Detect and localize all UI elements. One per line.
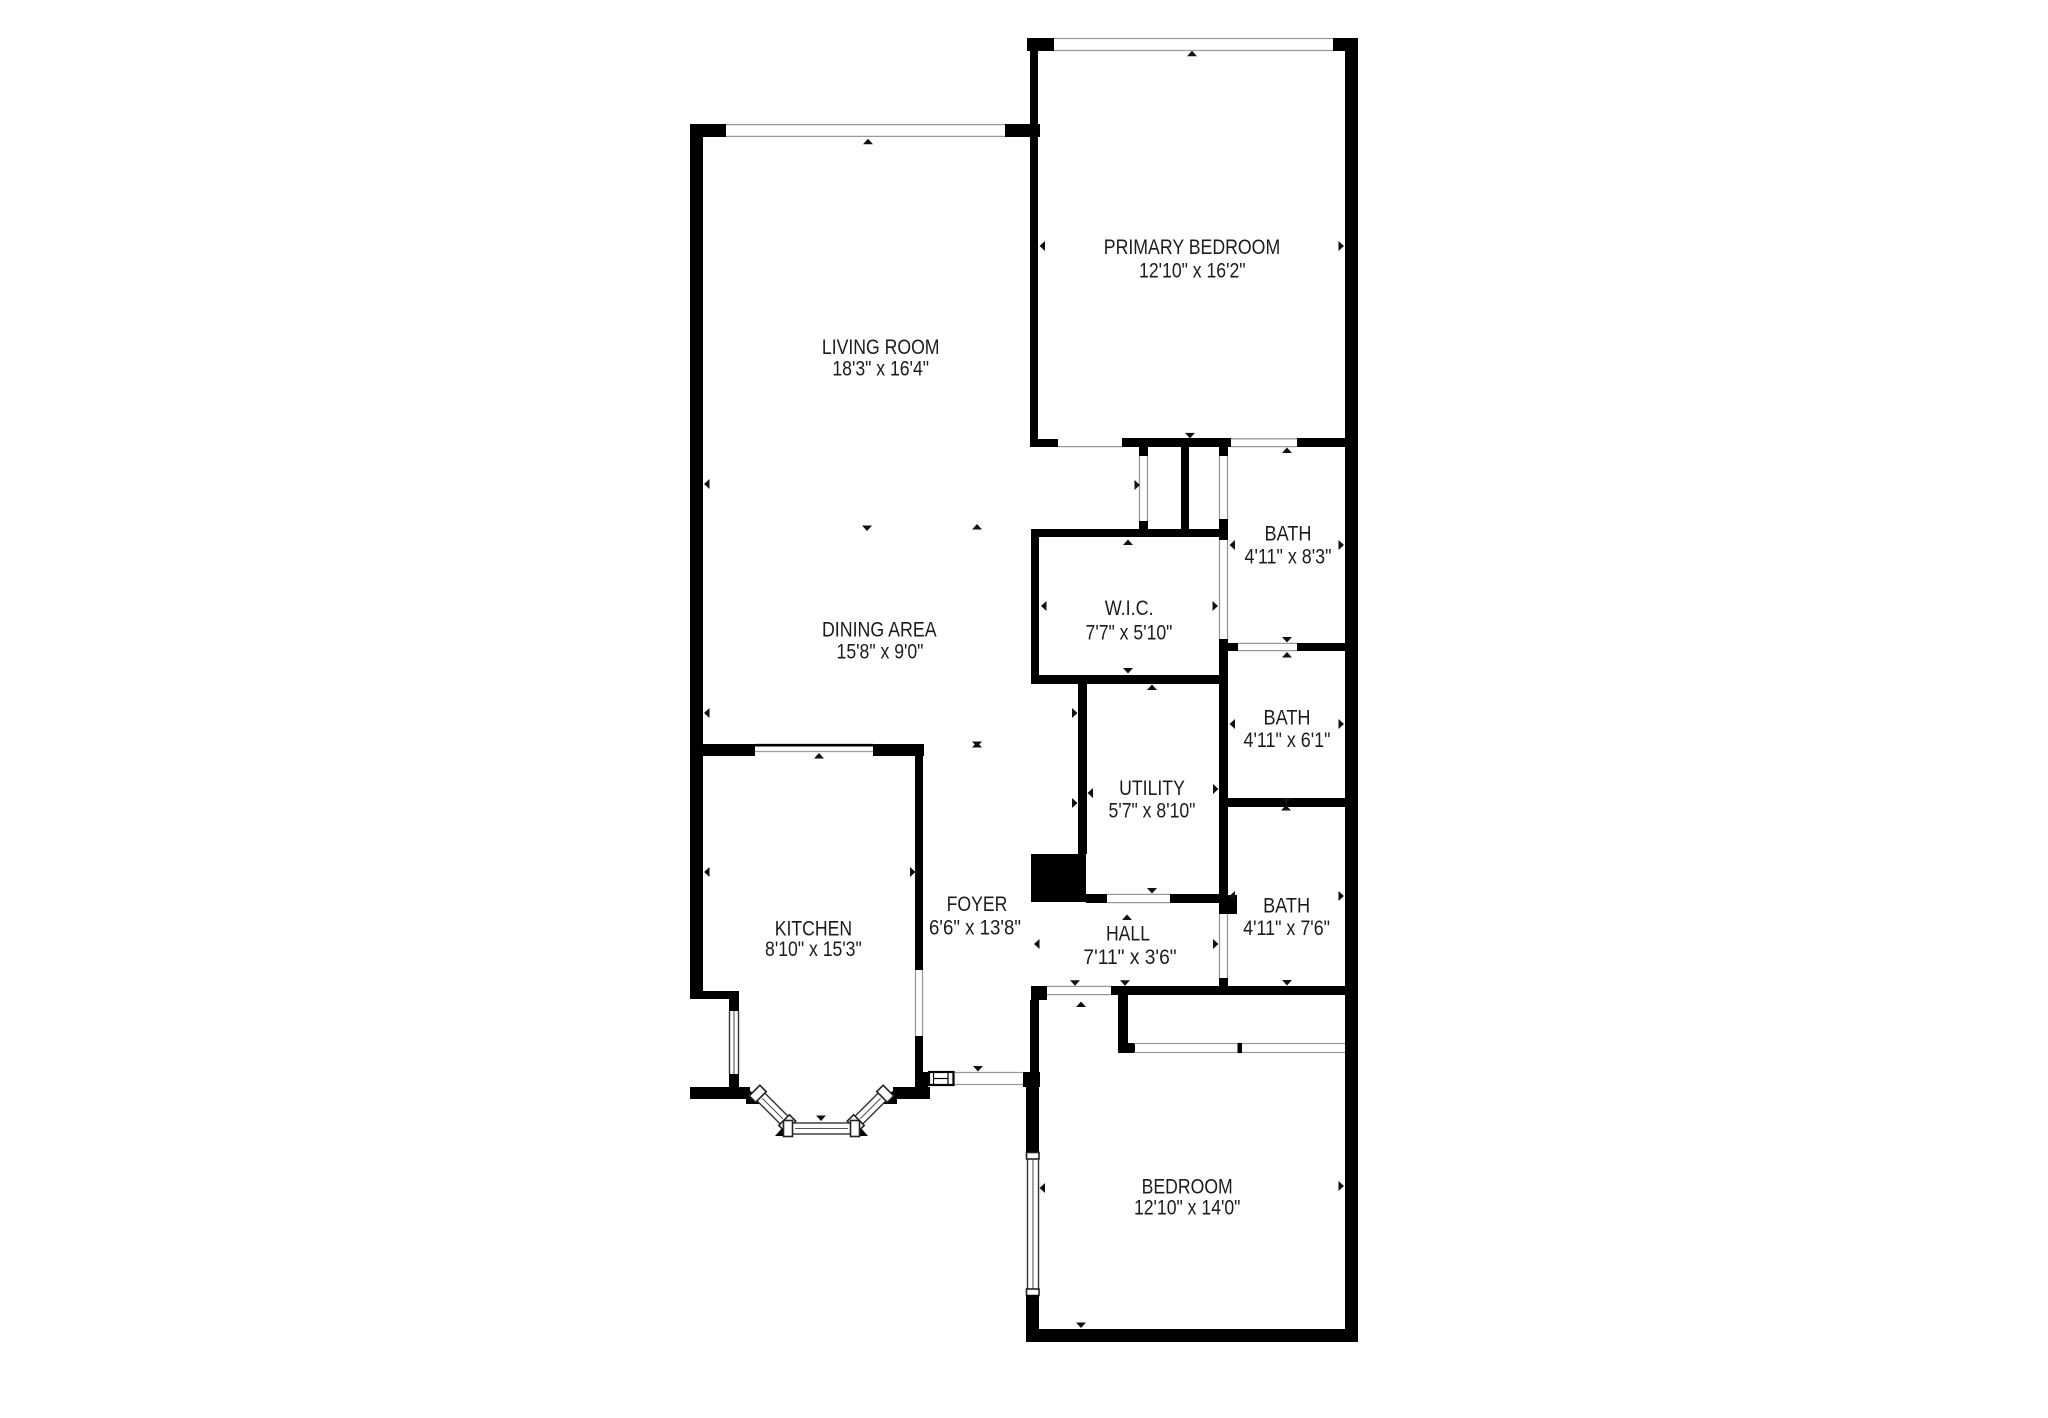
svg-text:5'7" x 8'10": 5'7" x 8'10" xyxy=(1109,800,1196,823)
svg-text:BATH: BATH xyxy=(1263,894,1310,917)
svg-text:12'10" x 16'2": 12'10" x 16'2" xyxy=(1139,260,1246,283)
svg-text:18'3" x 16'4": 18'3" x 16'4" xyxy=(832,358,929,381)
svg-text:BEDROOM: BEDROOM xyxy=(1142,1176,1233,1199)
svg-text:8'10" x 15'3": 8'10" x 15'3" xyxy=(765,938,862,961)
svg-text:15'8" x 9'0": 15'8" x 9'0" xyxy=(837,641,924,664)
svg-text:HALL: HALL xyxy=(1106,923,1150,946)
svg-text:7'7" x 5'10": 7'7" x 5'10" xyxy=(1086,622,1173,645)
svg-text:7'11" x 3'6": 7'11" x 3'6" xyxy=(1083,946,1176,969)
svg-text:FOYER: FOYER xyxy=(947,893,1008,916)
svg-text:4'11" x 7'6": 4'11" x 7'6" xyxy=(1243,917,1330,940)
svg-text:UTILITY: UTILITY xyxy=(1119,777,1185,800)
svg-text:4'11" x 6'1": 4'11" x 6'1" xyxy=(1244,729,1331,752)
svg-text:LIVING ROOM: LIVING ROOM xyxy=(822,336,940,359)
svg-text:PRIMARY BEDROOM: PRIMARY BEDROOM xyxy=(1104,236,1280,259)
svg-text:4'11" x 8'3": 4'11" x 8'3" xyxy=(1245,546,1332,569)
svg-text:BATH: BATH xyxy=(1265,523,1312,546)
svg-text:BATH: BATH xyxy=(1264,707,1311,730)
svg-text:12'10" x 14'0": 12'10" x 14'0" xyxy=(1134,1196,1241,1219)
svg-text:6'6" x 13'8": 6'6" x 13'8" xyxy=(929,917,1021,940)
svg-text:DINING AREA: DINING AREA xyxy=(822,619,937,642)
svg-text:W.I.C.: W.I.C. xyxy=(1105,597,1154,620)
